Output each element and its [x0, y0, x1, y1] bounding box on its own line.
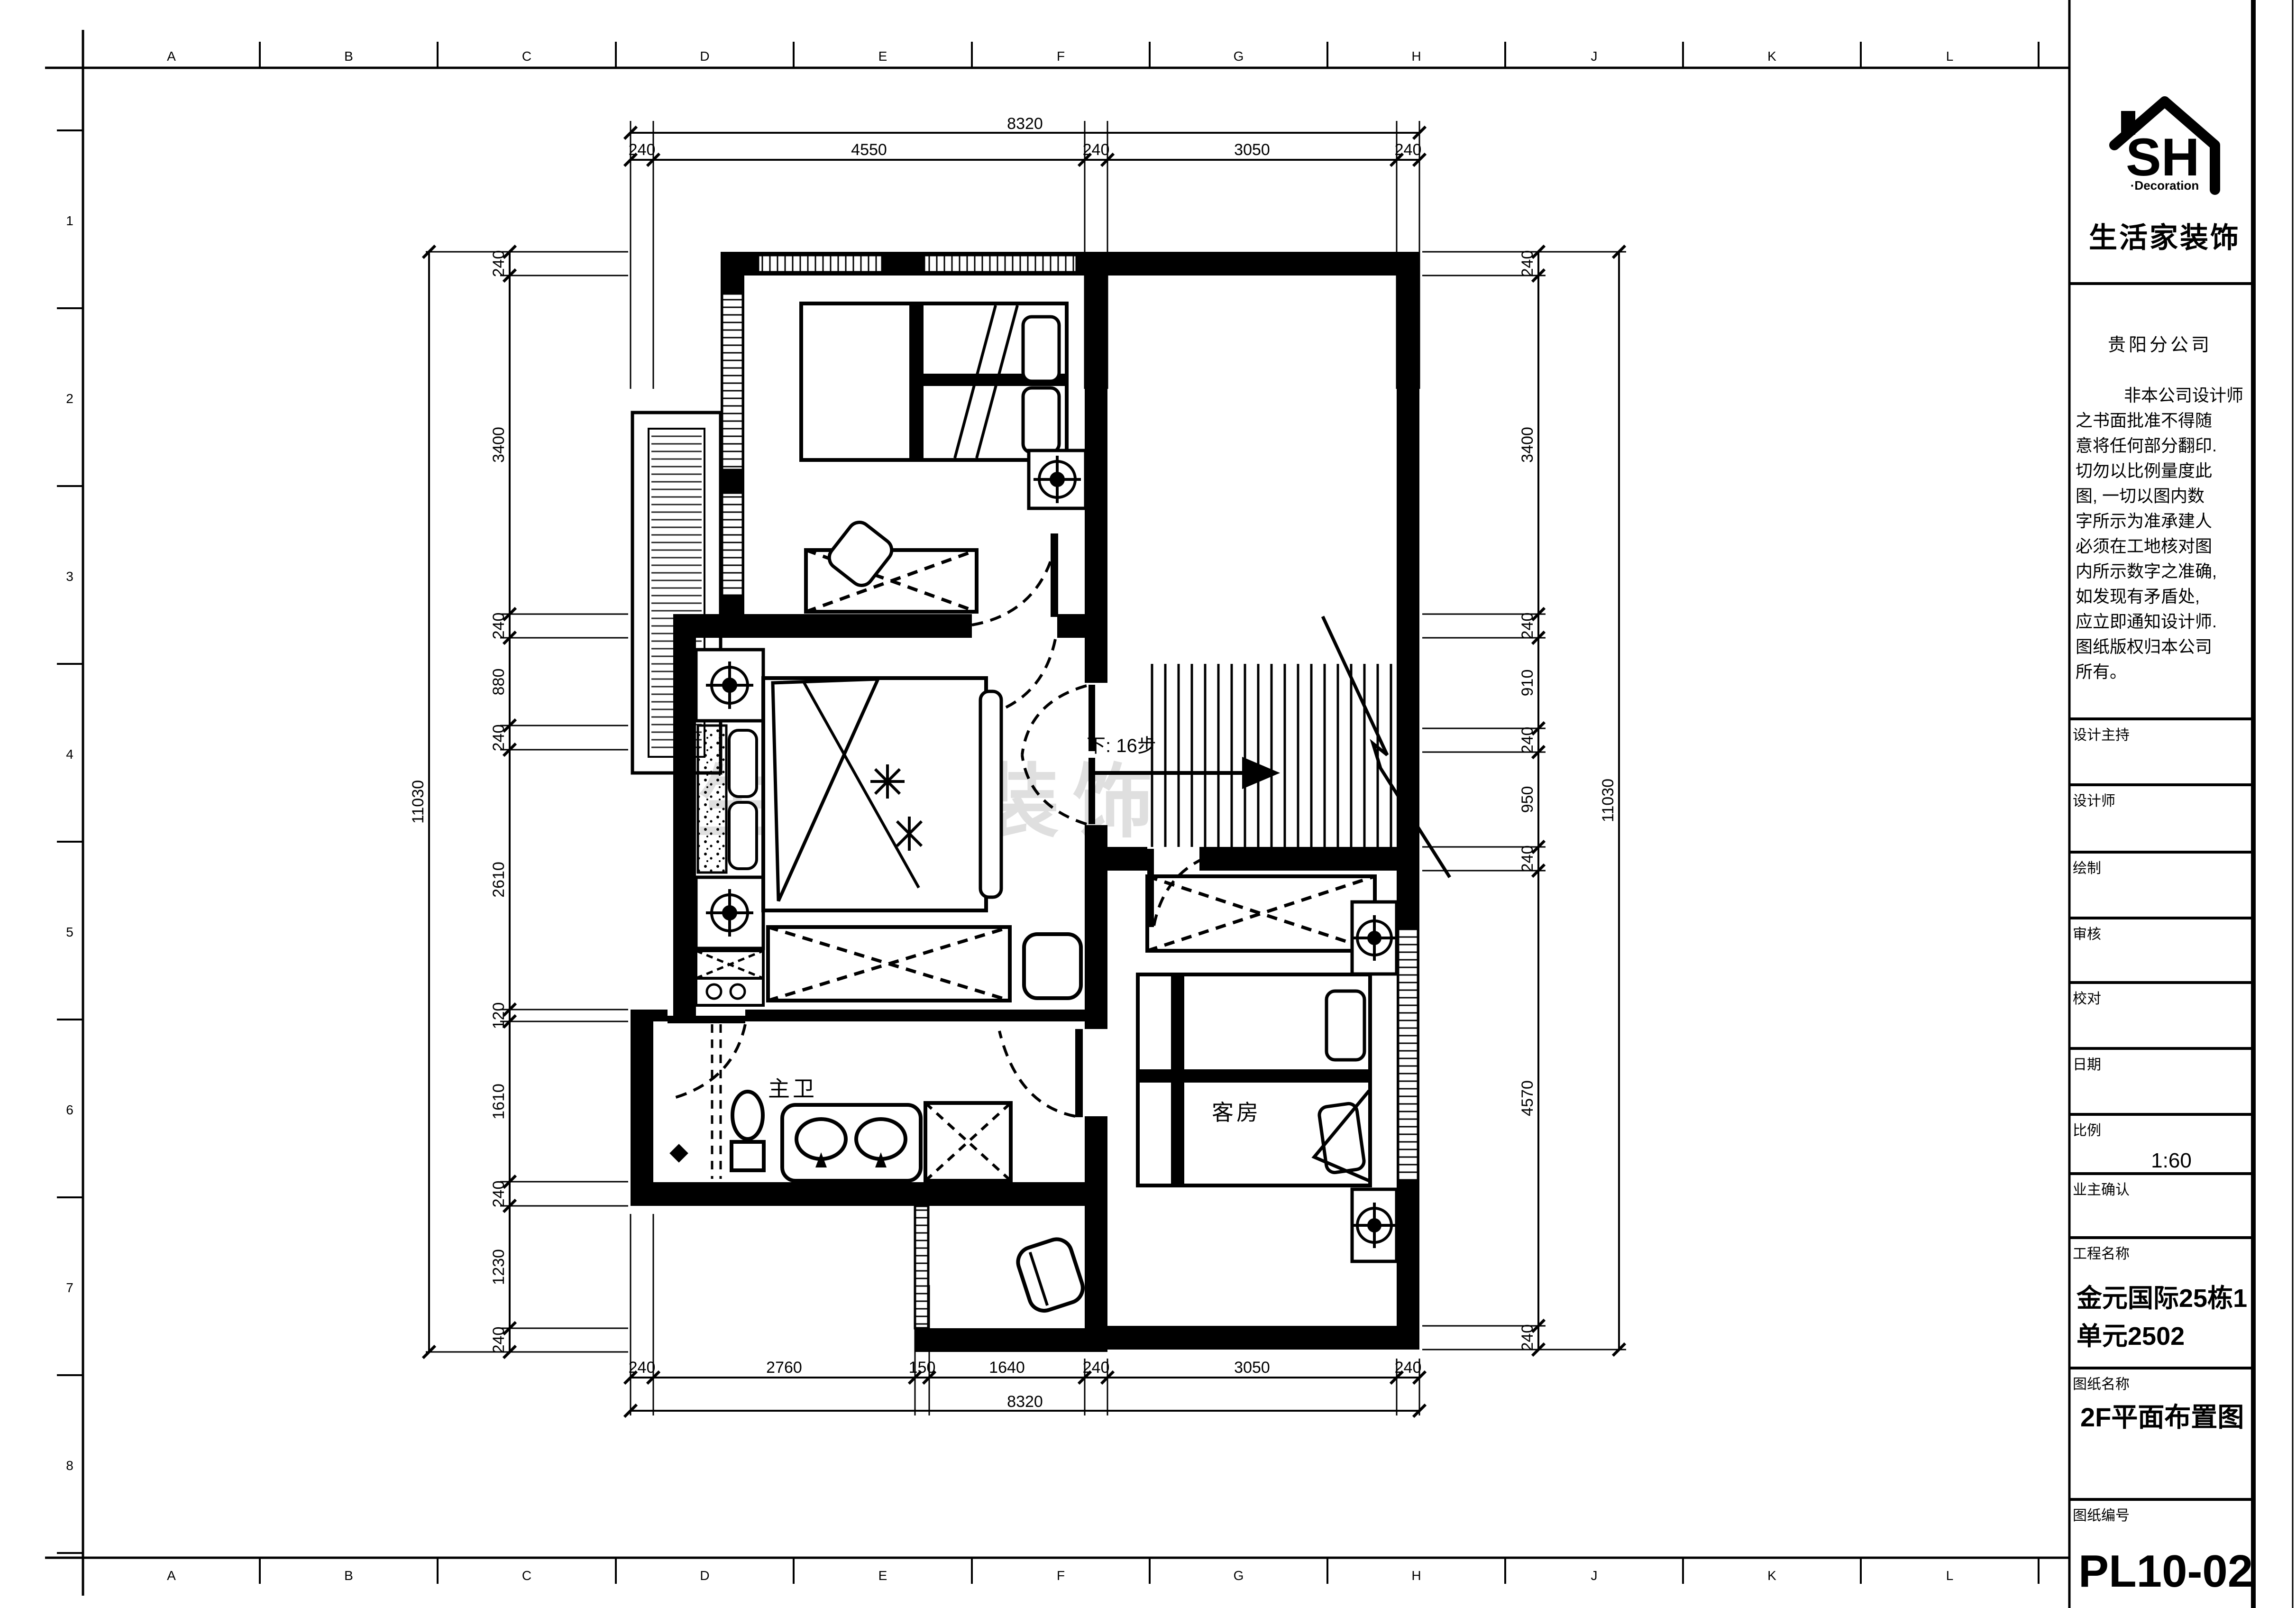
toilet: [732, 1092, 763, 1139]
scale-value: 1:60: [2151, 1149, 2192, 1172]
dim-label: 240: [1518, 250, 1537, 277]
disclaimer-line: 必须在工地核对图: [2076, 536, 2212, 556]
grid-letter-bottom: B: [344, 1568, 353, 1583]
grid-number-left: 3: [66, 569, 73, 584]
sheet-number: PL10-02: [2078, 1546, 2253, 1597]
dim-label: 240: [1083, 1359, 1110, 1377]
grid-letter-bottom: J: [1591, 1568, 1598, 1583]
dim-label: 240: [490, 725, 508, 752]
disclaimer-line: 切勿以比例量度此: [2076, 461, 2212, 480]
disclaimer-line: 字所示为准承建人: [2076, 511, 2212, 531]
grid-number-left: 4: [66, 747, 73, 762]
grid-letter-top: B: [344, 49, 353, 64]
disclaimer-line: 所有。: [2076, 662, 2127, 681]
grid-letter-top: J: [1591, 49, 1598, 64]
bed-footboard: [980, 691, 1001, 897]
field-proofreader: 校对: [2073, 991, 2101, 1007]
dim-label: 240: [1518, 845, 1537, 873]
dim-label: 240: [490, 1181, 508, 1208]
dim-label: 3400: [490, 427, 508, 463]
grid-letter-bottom: G: [1234, 1568, 1244, 1583]
logo-company-name: 生活家装饰: [2089, 222, 2241, 254]
disclaimer-line: 意将任何部分翻印.: [2076, 436, 2217, 455]
ottoman: [1024, 934, 1081, 998]
pillow: [1023, 388, 1059, 452]
dim-label: 240: [1518, 613, 1537, 640]
stair-direction-arrow: [1242, 757, 1280, 789]
upper-bedroom: [801, 303, 1086, 717]
grid-letter-top: E: [878, 49, 887, 64]
dim-label: 240: [1518, 727, 1537, 754]
pillow: [1023, 317, 1059, 381]
field-drafter: 绘制: [2073, 861, 2101, 876]
dim-label: 4550: [851, 141, 887, 159]
grid-number-left: 5: [66, 925, 73, 939]
grid-number-left: 6: [66, 1103, 73, 1117]
dim-label: 910: [1518, 670, 1537, 697]
field-project-name: 工程名称: [2073, 1246, 2130, 1262]
disclaimer-line: 应立即通知设计师.: [2076, 612, 2217, 631]
field-reviewer: 审核: [2073, 927, 2101, 942]
guest-room: 客房: [1138, 849, 1397, 1261]
dim-label: 240: [490, 613, 508, 640]
field-designer: 设计师: [2073, 793, 2115, 809]
disclaimer-line: 图, 一切以图内数: [2076, 486, 2205, 505]
dim-label: 1230: [490, 1249, 508, 1285]
dim-label: 8320: [1007, 115, 1043, 133]
double-door-arc: [1022, 686, 1087, 755]
door-leaf: [1147, 849, 1154, 927]
branch-name: 贵阳分公司: [2108, 335, 2212, 355]
break-line: [1323, 616, 1450, 877]
dim-label: 3400: [1518, 427, 1537, 463]
dim-label: 240: [1395, 141, 1422, 159]
dim-label: 240: [490, 1327, 508, 1354]
dim-label: 240: [1395, 1359, 1422, 1377]
dim-label: 8320: [1007, 1393, 1043, 1411]
dim-label: 880: [490, 669, 508, 696]
stair-note: 下: 16步: [1087, 735, 1156, 756]
dim-label: 1640: [989, 1359, 1025, 1377]
dim-label: 120: [490, 1002, 508, 1029]
dim-label: 3050: [1234, 1359, 1270, 1377]
disclaimer-line: 非本公司设计师: [2124, 386, 2243, 405]
corridor-chair: [1014, 1235, 1087, 1314]
grid-number-left: 8: [66, 1458, 73, 1473]
dim-label: 240: [1518, 1324, 1537, 1351]
grid-letter-top: F: [1057, 49, 1065, 64]
dim-label: 3050: [1234, 141, 1270, 159]
floor-plan-svg: AABBCCDDEEFFGGHHJJKKLL12345678 生活家装饰: [0, 0, 2296, 1608]
field-scale: 比例: [2073, 1123, 2101, 1139]
pillow: [729, 730, 757, 797]
pillow: [729, 802, 757, 869]
project-name-line2: 单元2502: [2076, 1322, 2185, 1351]
grid-number-left: 2: [66, 391, 73, 406]
grid-letter-top: C: [522, 49, 531, 64]
grid-letter-bottom: C: [522, 1568, 531, 1583]
dim-label: 240: [490, 250, 508, 277]
grid-letter-bottom: D: [700, 1568, 709, 1583]
field-date: 日期: [2073, 1057, 2101, 1073]
room-label-guest: 客房: [1212, 1100, 1261, 1125]
grid-letter-top: H: [1411, 49, 1421, 64]
dim-label: 11030: [1599, 779, 1617, 822]
dim-label: 240: [629, 141, 656, 159]
grid-letter-bottom: A: [167, 1568, 176, 1583]
grid-number-left: 7: [66, 1280, 73, 1295]
door-leaf: [1089, 758, 1095, 824]
grid-letter-bottom: K: [1767, 1568, 1776, 1583]
grid-letter-top: D: [700, 49, 709, 64]
grid-number-left: 1: [66, 213, 73, 228]
grid-letter-top: L: [1946, 49, 1954, 64]
door-leaf: [1075, 1029, 1083, 1117]
headboard-texture: [698, 726, 726, 873]
floor-drain: [669, 1144, 688, 1163]
vanity: [782, 1105, 921, 1181]
grid-letter-top: G: [1234, 49, 1244, 64]
door-swing-arc: [972, 542, 1056, 625]
dim-label: 2760: [766, 1359, 802, 1377]
grid-letter-top: A: [167, 49, 176, 64]
field-sheet-number: 图纸编号: [2073, 1508, 2130, 1524]
dim-label: 1610: [490, 1084, 508, 1120]
company-logo: SH ·Decoration 生活家装饰: [2089, 101, 2241, 254]
disclaimer-line: 之书面批准不得随: [2076, 411, 2212, 430]
grid-letter-bottom: F: [1057, 1568, 1065, 1583]
sheet-name: 2F平面布置图: [2080, 1402, 2244, 1432]
dim-label: 150: [909, 1359, 936, 1377]
grid-letter-bottom: L: [1946, 1568, 1954, 1583]
title-block: SH ·Decoration 生活家装饰 贵阳分公司 非本公司设计师之书面批准不…: [2069, 0, 2293, 1608]
bathroom: 主卫: [668, 1016, 1083, 1181]
drawing-sheet: AABBCCDDEEFFGGHHJJKKLL12345678 生活家装饰: [0, 0, 2296, 1608]
room-label-bathroom: 主卫: [768, 1076, 817, 1101]
grid-letter-top: K: [1767, 49, 1776, 64]
project-name-line1: 金元国际25栋1: [2076, 1284, 2247, 1313]
field-sheet-name: 图纸名称: [2073, 1377, 2130, 1392]
field-owner-confirm: 业主确认: [2073, 1182, 2130, 1198]
logo-decoration: ·Decoration: [2131, 178, 2199, 193]
dim-label: 11030: [409, 780, 427, 824]
pillow: [1326, 991, 1364, 1060]
field-design-director: 设计主持: [2073, 727, 2130, 743]
dim-label: 2610: [490, 862, 508, 898]
disclaimer-line: 图纸版权归本公司: [2076, 637, 2212, 656]
disclaimer-line: 如发现有矛盾处,: [2076, 587, 2200, 606]
dim-label: 950: [1518, 786, 1537, 813]
door-leaf: [668, 1016, 745, 1023]
door-swing-arc: [669, 1024, 745, 1099]
disclaimer-paragraph: 非本公司设计师之书面批准不得随意将任何部分翻印.切勿以比例量度此图, 一切以图内…: [2076, 386, 2243, 681]
grid-letter-bottom: H: [1411, 1568, 1421, 1583]
grid-letter-bottom: E: [878, 1568, 887, 1583]
disclaimer-line: 内所示数字之准确,: [2076, 561, 2217, 581]
dim-label: 4570: [1518, 1080, 1537, 1116]
dim-label: 240: [629, 1359, 656, 1377]
dim-label: 240: [1083, 141, 1110, 159]
